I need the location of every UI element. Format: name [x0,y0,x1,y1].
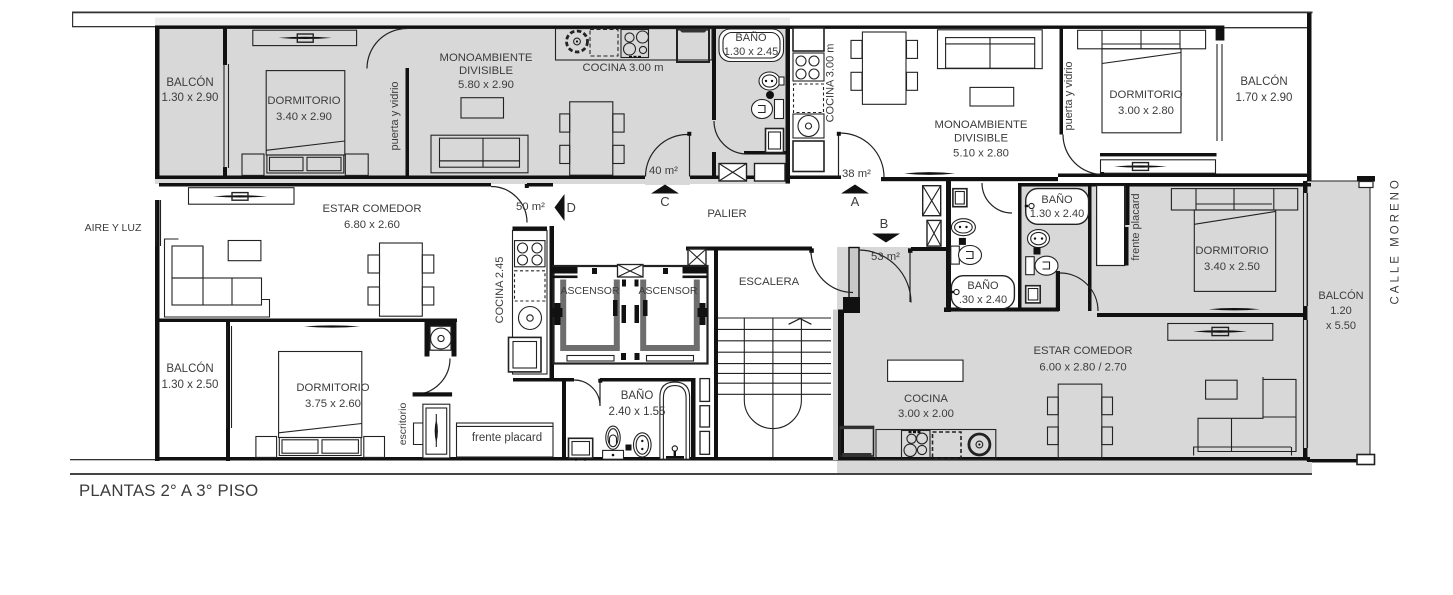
svg-text:puerta y vidrio: puerta y vidrio [389,81,401,150]
svg-text:AIRE Y LUZ: AIRE Y LUZ [85,222,142,234]
svg-text:COCINA 3.00 m: COCINA 3.00 m [825,44,837,123]
svg-text:DORMITORIO: DORMITORIO [296,382,369,394]
svg-text:DIVISIBLE: DIVISIBLE [954,133,1008,145]
svg-text:BAÑO: BAÑO [967,279,999,292]
svg-text:MONOAMBIENTE: MONOAMBIENTE [440,52,533,64]
svg-text:CALLE MORENO: CALLE MORENO [1390,177,1402,304]
svg-text:BALCÓN: BALCÓN [1240,75,1287,88]
svg-text:ESCALERA: ESCALERA [739,276,800,288]
svg-text:escritorio: escritorio [397,403,409,446]
svg-text:B: B [880,216,889,231]
svg-text:3.00 x 2.80: 3.00 x 2.80 [1118,105,1174,117]
svg-text:53 m²: 53 m² [871,251,900,263]
svg-text:DORMITORIO: DORMITORIO [1109,89,1182,101]
svg-text:MONOAMBIENTE: MONOAMBIENTE [935,119,1028,131]
svg-text:1.20: 1.20 [1330,305,1351,317]
svg-text:ESTAR COMEDOR: ESTAR COMEDOR [1034,345,1133,357]
svg-text:BAÑO: BAÑO [735,31,767,44]
svg-text:5.80 x 2.90: 5.80 x 2.90 [458,79,514,91]
svg-text:C: C [660,194,669,209]
svg-text:6.80 x 2.60: 6.80 x 2.60 [344,219,400,231]
svg-text:BAÑO: BAÑO [1041,193,1073,206]
svg-text:1.70 x 2.90: 1.70 x 2.90 [1236,92,1293,104]
svg-text:50 m²: 50 m² [516,201,545,213]
svg-text:1.30 x 2.50: 1.30 x 2.50 [162,379,219,391]
svg-text:COCINA 3.00 m: COCINA 3.00 m [583,62,664,74]
svg-text:6.00 x 2.80 / 2.70: 6.00 x 2.80 / 2.70 [1039,362,1126,374]
svg-text:COCINA 2.45: COCINA 2.45 [494,257,506,324]
svg-text:1.30 x 2.45: 1.30 x 2.45 [724,46,778,58]
svg-text:BALCÓN: BALCÓN [1318,289,1363,302]
svg-text:x 5.50: x 5.50 [1326,320,1356,332]
svg-text:BALCÓN: BALCÓN [166,362,213,375]
svg-text:ESTAR COMEDOR: ESTAR COMEDOR [323,203,422,215]
svg-text:puerta y vidrio: puerta y vidrio [1063,61,1075,130]
svg-text:frente placard: frente placard [1130,193,1142,260]
svg-text:BAÑO: BAÑO [621,389,654,402]
svg-text:ASCENSOR: ASCENSOR [639,285,698,297]
svg-text:DORMITORIO: DORMITORIO [267,95,340,107]
svg-text:.30 x 2.40: .30 x 2.40 [959,294,1007,306]
svg-text:DIVISIBLE: DIVISIBLE [459,65,513,77]
svg-text:PLANTAS 2° A 3° PISO: PLANTAS 2° A 3° PISO [79,481,258,500]
svg-text:BALCÓN: BALCÓN [166,76,213,89]
svg-text:2.40 x 1.55: 2.40 x 1.55 [609,406,666,418]
svg-text:PALIER: PALIER [707,208,746,220]
svg-text:1.30 x 2.40: 1.30 x 2.40 [1030,208,1084,220]
svg-text:3.75 x 2.60: 3.75 x 2.60 [305,398,361,410]
svg-text:3.40 x 2.90: 3.40 x 2.90 [276,111,332,123]
svg-text:3.40 x 2.50: 3.40 x 2.50 [1204,261,1260,273]
svg-text:ASCENSOR: ASCENSOR [561,285,620,297]
svg-text:38 m²: 38 m² [842,168,871,180]
svg-text:3.00 x 2.00: 3.00 x 2.00 [898,408,954,420]
svg-text:frente placard: frente placard [472,432,542,444]
svg-text:40 m²: 40 m² [649,165,678,177]
svg-text:A: A [851,194,860,209]
svg-text:COCINA: COCINA [904,393,948,405]
svg-text:DORMITORIO: DORMITORIO [1195,245,1268,257]
svg-text:D: D [567,200,576,215]
svg-text:5.10 x 2.80: 5.10 x 2.80 [953,148,1009,160]
svg-text:1.30 x 2.90: 1.30 x 2.90 [162,92,219,104]
